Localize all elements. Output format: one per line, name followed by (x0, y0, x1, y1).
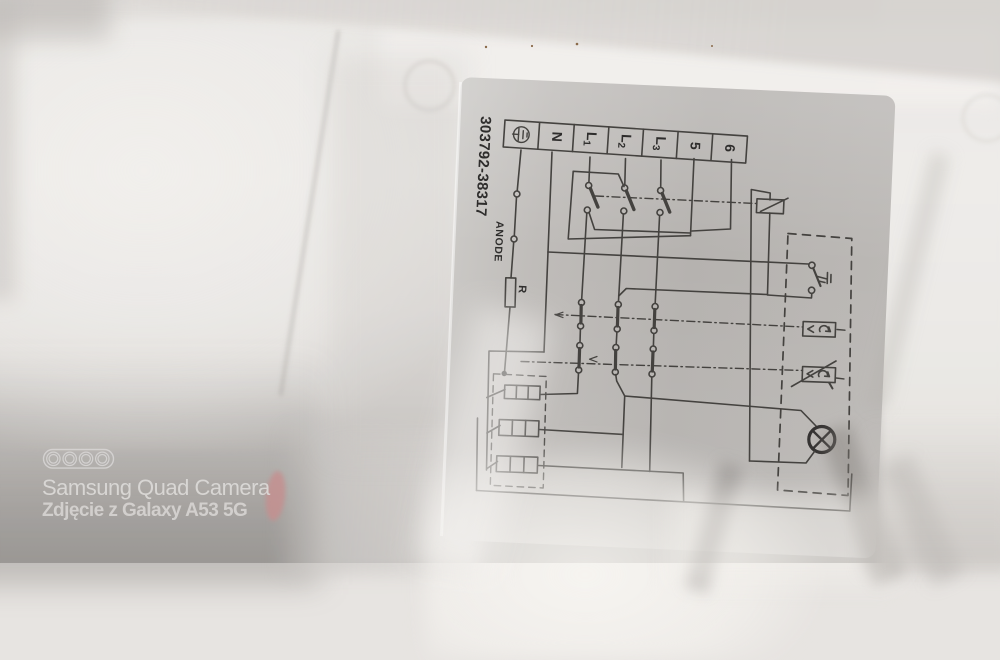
svg-text:N: N (549, 131, 565, 142)
svg-text:ANODE: ANODE (492, 221, 506, 262)
svg-text:R: R (516, 285, 528, 294)
svg-text:5: 5 (687, 142, 703, 151)
svg-text:6: 6 (722, 144, 738, 153)
